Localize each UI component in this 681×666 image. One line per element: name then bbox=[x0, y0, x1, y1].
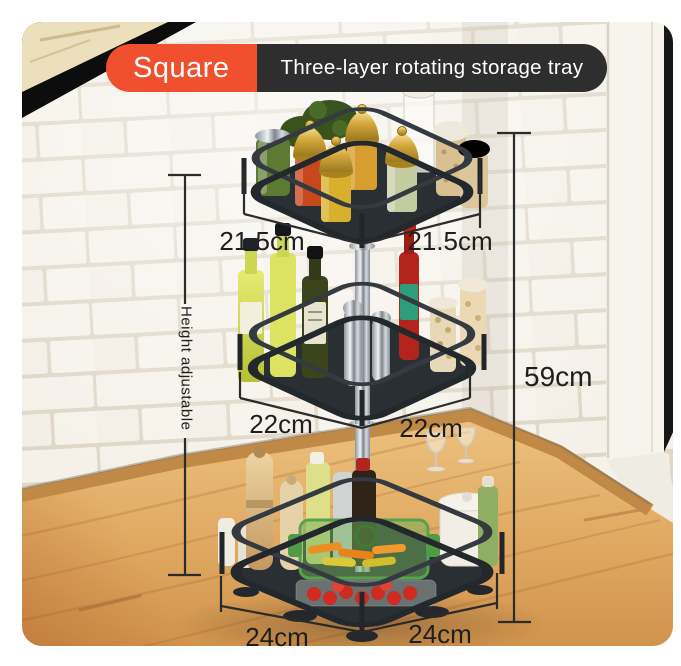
dim-tier2-left-label: 22cm bbox=[249, 409, 313, 440]
dim-base-left-label: 24cm bbox=[245, 622, 309, 653]
product-title: Three-layer rotating storage tray bbox=[257, 44, 608, 92]
dim-tier1-right-label: 21.5cm bbox=[407, 226, 492, 257]
height-adjustable-label: Height adjustable bbox=[178, 306, 195, 440]
dim-base-right-label: 24cm bbox=[408, 619, 472, 650]
dim-total-height-label: 59cm bbox=[524, 361, 592, 393]
shape-badge: Square bbox=[106, 44, 257, 92]
product-photo bbox=[22, 22, 673, 646]
dim-tier1-left-label: 21.5cm bbox=[219, 226, 304, 257]
product-image: Square Three-layer rotating storage tray… bbox=[0, 0, 681, 666]
kitchen-scene-illustration bbox=[22, 22, 673, 646]
dim-tier2-right-label: 22cm bbox=[399, 413, 463, 444]
banner: Square Three-layer rotating storage tray bbox=[106, 44, 607, 92]
window-glass bbox=[664, 22, 673, 452]
